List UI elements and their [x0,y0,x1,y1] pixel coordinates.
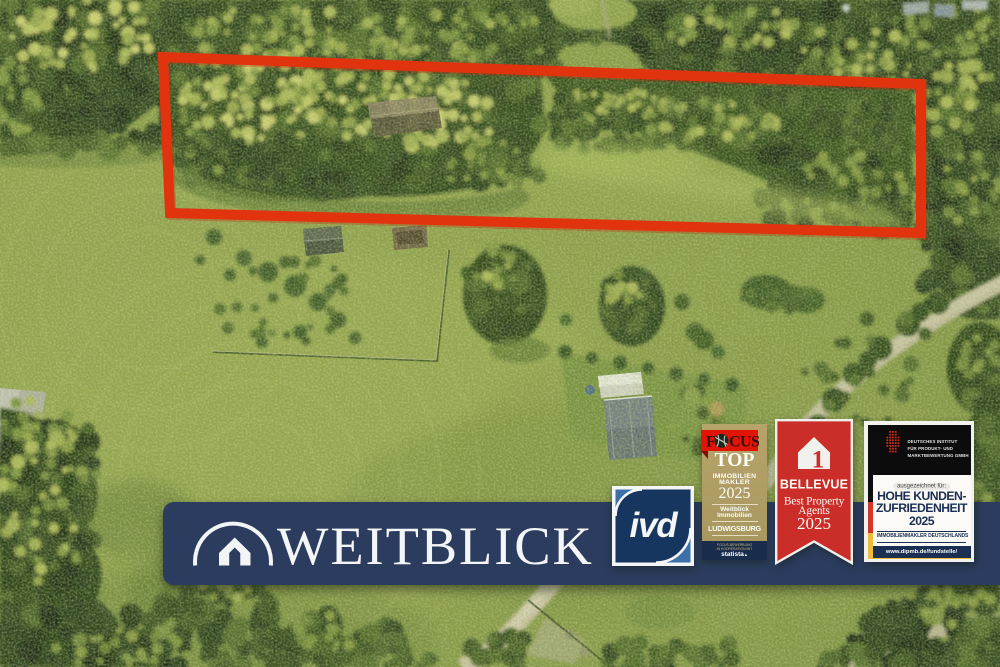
svg-text:BELLEVUE: BELLEVUE [780,478,848,492]
svg-text:1: 1 [812,447,825,474]
svg-text:CUS: CUS [729,433,759,450]
svg-text:F: F [706,433,716,450]
svg-text:2025: 2025 [797,514,831,533]
